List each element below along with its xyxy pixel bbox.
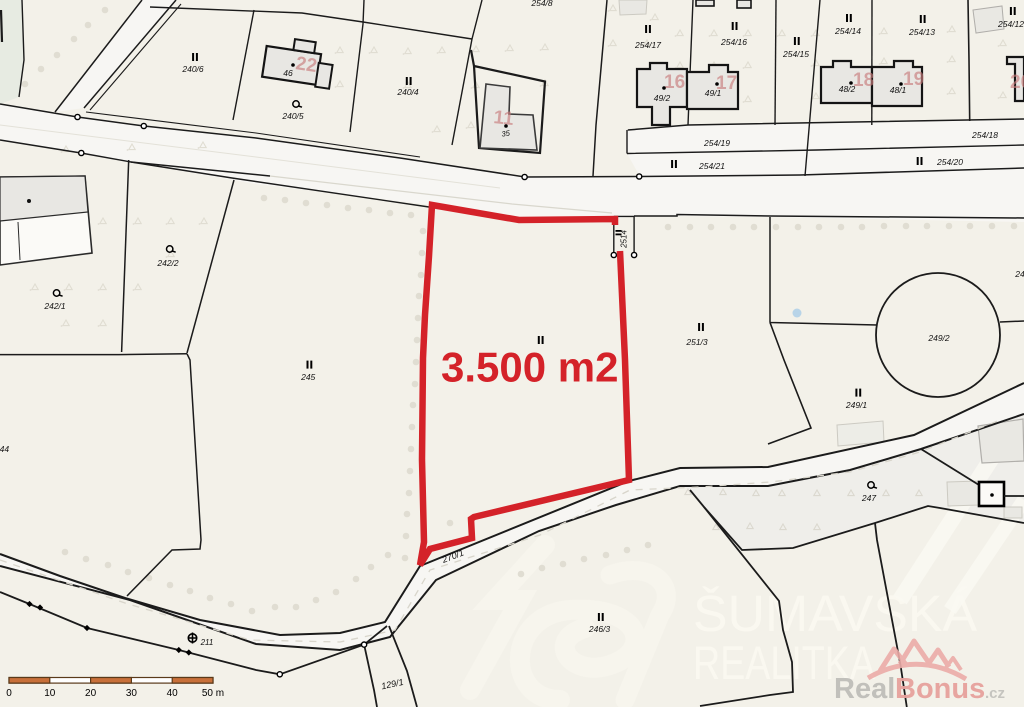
svg-text:242/1: 242/1 — [43, 301, 66, 311]
svg-text:246/3: 246/3 — [588, 624, 611, 634]
svg-text:254/18: 254/18 — [971, 130, 998, 140]
svg-text:254/8: 254/8 — [530, 0, 553, 8]
svg-text:254/17: 254/17 — [634, 40, 661, 50]
svg-text:20: 20 — [1010, 72, 1024, 93]
svg-text:249/1: 249/1 — [845, 400, 868, 410]
svg-text:244: 244 — [0, 444, 9, 454]
svg-text:254/13: 254/13 — [908, 27, 935, 37]
svg-text:242/2: 242/2 — [156, 258, 179, 268]
svg-text:16: 16 — [664, 72, 685, 93]
svg-text:50 m: 50 m — [202, 688, 224, 699]
svg-text:49/1: 49/1 — [705, 88, 722, 98]
svg-text:254/19: 254/19 — [703, 138, 730, 148]
svg-text:3.500 m2: 3.500 m2 — [441, 344, 618, 391]
svg-text:245: 245 — [300, 372, 315, 382]
svg-text:254/14: 254/14 — [834, 26, 861, 36]
svg-text:254/15: 254/15 — [782, 49, 809, 59]
svg-text:247: 247 — [861, 493, 876, 503]
svg-text:40: 40 — [167, 688, 179, 699]
svg-text:0: 0 — [6, 688, 12, 699]
svg-text:22: 22 — [294, 53, 318, 77]
svg-text:2514: 2514 — [620, 230, 629, 249]
svg-text:Bonus: Bonus — [895, 673, 985, 705]
svg-text:48/1: 48/1 — [890, 85, 907, 95]
svg-text:48/2: 48/2 — [839, 84, 856, 94]
svg-text:ŠUMAVSKÁ: ŠUMAVSKÁ — [693, 585, 977, 642]
svg-text:240/4: 240/4 — [396, 87, 419, 97]
svg-text:46: 46 — [283, 68, 293, 78]
svg-text:254/12: 254/12 — [997, 19, 1024, 29]
svg-text:240/6: 240/6 — [181, 64, 204, 74]
svg-text:254/21: 254/21 — [698, 161, 725, 171]
svg-text:20: 20 — [85, 688, 97, 699]
svg-text:.cz: .cz — [985, 685, 1005, 702]
svg-text:211: 211 — [200, 638, 214, 647]
svg-text:11: 11 — [492, 107, 515, 130]
svg-text:24: 24 — [1014, 269, 1024, 279]
svg-text:30: 30 — [126, 688, 138, 699]
svg-text:18: 18 — [853, 70, 874, 91]
svg-text:254/20: 254/20 — [936, 157, 963, 167]
svg-text:249/2: 249/2 — [927, 333, 950, 343]
svg-text:49/2: 49/2 — [654, 93, 671, 103]
svg-text:251/3: 251/3 — [685, 337, 708, 347]
svg-text:240/5: 240/5 — [281, 111, 304, 121]
svg-text:10: 10 — [44, 688, 56, 699]
svg-text:Real: Real — [834, 673, 895, 705]
svg-text:254/16: 254/16 — [720, 37, 747, 47]
